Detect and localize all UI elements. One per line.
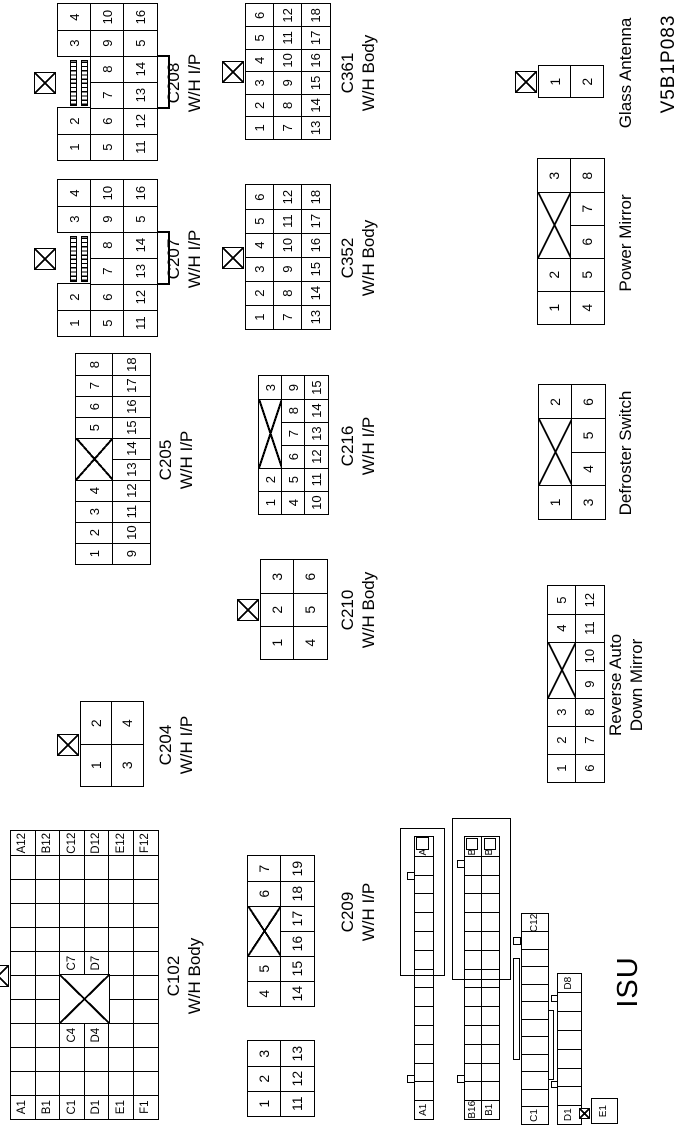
pin-cell-12: 12 (575, 585, 605, 615)
pin-cell-9: 9 (90, 205, 125, 233)
pin-cell-14: 14 (112, 437, 151, 460)
pin-cell (557, 1067, 582, 1088)
pin-cell-2: 2 (57, 283, 92, 311)
connector-label-line: C205 (156, 431, 177, 490)
pin-cell-8: 8 (273, 280, 303, 306)
pin-cell-F12: F12 (133, 830, 159, 856)
pin-cell-15: 15 (301, 256, 331, 282)
pin-cell-8: 8 (575, 697, 605, 727)
pin-cell (133, 926, 159, 952)
pin-cell-C7: C7 (59, 950, 85, 976)
pin-cell (133, 854, 159, 880)
pin-cell-6: 6 (281, 444, 306, 469)
pin-cell (10, 998, 36, 1024)
pin-cell-4: 4 (111, 701, 144, 745)
housing-outline (400, 828, 445, 976)
pin-cell (521, 1088, 549, 1107)
pin-cell-9: 9 (273, 256, 303, 282)
pin-cell-10: 10 (90, 179, 125, 207)
pin-cell (133, 1070, 159, 1096)
pin-cell-2: 2 (260, 592, 295, 627)
pin-cell-6: 6 (571, 384, 606, 419)
pin-cell (35, 926, 61, 952)
connector-label-line: Defroster Switch (616, 391, 637, 516)
pin-cell-11: 11 (575, 613, 605, 643)
pin-cell-5: 5 (75, 416, 114, 439)
pin-cell (464, 1043, 483, 1064)
connector-label-C207: C207W/H I/P (164, 230, 205, 289)
pin-cell (133, 950, 159, 976)
pin-cell (521, 1001, 549, 1020)
figure-code: V5B1P083 (658, 15, 680, 114)
housing-outline (452, 818, 511, 980)
pin-cell-5: 5 (293, 592, 328, 627)
pin-cell-13: 13 (301, 304, 331, 330)
lock-rail-icon (81, 60, 88, 106)
pin-cell (59, 1070, 85, 1096)
pin-cell (10, 1022, 36, 1048)
pin-cell (521, 1018, 549, 1037)
pin-cell-9: 9 (281, 375, 306, 400)
pin-cell-3: 3 (245, 71, 275, 95)
pin-cell-10: 10 (273, 232, 303, 258)
pin-cell-1: 1 (538, 485, 573, 520)
pin-cell-4: 4 (57, 179, 92, 207)
pin-cell-2: 2 (75, 521, 114, 544)
pin-cell-14: 14 (123, 55, 158, 83)
pin-cell-14: 14 (280, 980, 315, 1007)
pin-cell (59, 902, 85, 928)
pin-cell-8: 8 (273, 93, 303, 117)
connector-label-C102: C102W/H Body (164, 938, 205, 1015)
connector-label-line: C361 (338, 35, 359, 112)
pin-cell (133, 878, 159, 904)
pin-cell (521, 966, 549, 985)
connector-label-C204: C204W/H I/P (156, 716, 197, 775)
clip-mark-icon (579, 1108, 590, 1119)
pin-cell-7: 7 (575, 725, 605, 755)
pin-cell-5: 5 (90, 133, 125, 161)
pin-cell-5: 5 (245, 26, 275, 50)
pin-cell-5: 5 (123, 205, 158, 233)
pin-cell-1: 1 (537, 290, 572, 325)
connector-label-C216: C216W/H I/P (338, 417, 379, 476)
pin-cell (464, 987, 483, 1008)
pin-cell (133, 902, 159, 928)
pin-cell-16: 16 (123, 3, 158, 31)
pin-cell-1: 1 (80, 743, 113, 787)
pin-cell-1: 1 (245, 116, 275, 140)
pin-cell (557, 992, 582, 1013)
connector-label-line: W/H Body (359, 220, 380, 297)
pin-cell-18: 18 (112, 353, 151, 376)
pin-cell (414, 1024, 434, 1045)
pin-cell (35, 1022, 61, 1048)
pin-cell-2: 2 (538, 384, 573, 419)
clip-mark-icon (515, 72, 537, 94)
pin-cell (59, 878, 85, 904)
pin-cell-D1: D1 (557, 1105, 582, 1126)
pin-cell-8: 8 (90, 55, 125, 83)
pin-cell-B12: B12 (35, 830, 61, 856)
x-cell (75, 437, 114, 481)
connector-label-ReverseAutoDownMirror: Reverse AutoDown Mirror (606, 634, 647, 736)
pin-cell-13: 13 (301, 116, 331, 140)
clip-mark-icon (222, 247, 244, 269)
pin-cell (414, 1006, 434, 1027)
pin-cell-11: 11 (123, 309, 158, 337)
pin-cell-5: 5 (281, 467, 306, 492)
connector-label-line: W/H I/P (185, 230, 206, 289)
connector-label-line: C102 (164, 938, 185, 1015)
clip-mark-icon (0, 965, 9, 987)
connector-label-C210: C210W/H Body (338, 572, 379, 649)
pin-cell-D12: D12 (84, 830, 110, 856)
pin-cell-6: 6 (575, 753, 605, 783)
connector-label-line: W/H Body (185, 938, 206, 1015)
connector-label-line: C209 (338, 883, 359, 942)
pin-cell (35, 854, 61, 880)
x-cell (59, 974, 110, 1024)
housing-pad (466, 838, 478, 850)
pin-cell-7: 7 (281, 421, 306, 446)
pin-cell-2: 2 (57, 107, 92, 135)
pin-cell-17: 17 (112, 374, 151, 397)
pin-cell-6: 6 (245, 3, 275, 27)
pin-cell-5: 5 (245, 208, 275, 234)
pin-cell-10: 10 (575, 641, 605, 671)
pin-cell (481, 987, 500, 1008)
pin-cell-12: 12 (273, 184, 303, 210)
pin-cell-7: 7 (90, 81, 125, 109)
pin-cell-6: 6 (570, 224, 605, 259)
pin-cell-13: 13 (304, 421, 329, 446)
pin-cell (10, 974, 36, 1000)
pin-cell-12: 12 (123, 107, 158, 135)
pin-cell (464, 1081, 483, 1102)
clip-mark-icon (34, 72, 56, 94)
diagram-page: A1A12B1B12C1C4C7C12D1D4D7D12E1E12F1F12C1… (0, 0, 700, 1127)
pin-cell-5: 5 (247, 955, 282, 982)
pin-cell-4: 4 (245, 232, 275, 258)
pin-cell (84, 926, 110, 952)
pin-cell (108, 902, 134, 928)
pin-cell-12: 12 (123, 283, 158, 311)
pin-cell-F1: F1 (133, 1094, 159, 1120)
pin-cell-12: 12 (273, 3, 303, 27)
pin-cell (84, 1046, 110, 1072)
pin-cell-E1: E1 (591, 1098, 618, 1124)
pin-cell-4: 4 (281, 490, 306, 515)
pin-cell (84, 902, 110, 928)
pin-cell-4: 4 (245, 48, 275, 72)
pin-cell-6: 6 (293, 559, 328, 594)
pin-cell-1: 1 (75, 542, 114, 565)
pin-cell-16: 16 (301, 48, 331, 72)
pin-cell (414, 1081, 434, 1102)
pin-cell-1: 1 (260, 625, 295, 660)
pin-cell (10, 950, 36, 976)
pin-cell (10, 1046, 36, 1072)
pin-cell-11: 11 (280, 1090, 315, 1117)
pin-cell (59, 926, 85, 952)
pin-cell-9: 9 (90, 29, 125, 57)
pin-cell-3: 3 (571, 485, 606, 520)
connector-label-line: W/H I/P (177, 716, 198, 775)
pin-cell (521, 931, 549, 950)
pin-cell-13: 13 (280, 1040, 315, 1067)
pin-cell-3: 3 (547, 697, 577, 727)
pin-cell-D7: D7 (84, 950, 110, 976)
pin-cell-16: 16 (280, 930, 315, 957)
pin-cell-B1: B1 (35, 1094, 61, 1120)
connector-label-line: C216 (338, 417, 359, 476)
connector-label-line: Down Mirror (627, 634, 648, 736)
pin-cell-15: 15 (301, 71, 331, 95)
pin-cell-4: 4 (571, 451, 606, 486)
pin-cell-6: 6 (247, 880, 282, 907)
pin-cell (464, 1024, 483, 1045)
connector-label-line: C208 (164, 54, 185, 113)
pin-cell-3: 3 (258, 375, 283, 400)
pin-cell (35, 974, 61, 1000)
housing-pad (457, 1075, 465, 1083)
connector-label-line: W/H I/P (177, 431, 198, 490)
pin-cell-16: 16 (123, 179, 158, 207)
pin-cell-14: 14 (304, 398, 329, 423)
pin-cell (108, 950, 134, 976)
pin-cell-6: 6 (75, 395, 114, 418)
pin-cell (108, 854, 134, 880)
pin-cell-16: 16 (112, 395, 151, 418)
pin-cell (108, 926, 134, 952)
pin-cell (133, 1046, 159, 1072)
pin-cell (35, 950, 61, 976)
pin-cell (521, 1071, 549, 1090)
housing-pad (551, 995, 558, 1002)
pin-cell-8: 8 (281, 398, 306, 423)
pin-cell (35, 1070, 61, 1096)
housing-outline (548, 1010, 554, 1080)
connector-label-line: Power Mirror (616, 194, 637, 291)
pin-cell-11: 11 (273, 208, 303, 234)
clip-mark-icon (237, 600, 259, 622)
connector-label-C352: C352W/H Body (338, 220, 379, 297)
pin-cell (557, 1086, 582, 1107)
connector-label-line: W/H Body (359, 35, 380, 112)
pin-cell-18: 18 (301, 3, 331, 27)
pin-cell (108, 1046, 134, 1072)
x-cell (547, 641, 577, 699)
connector-label-C205: C205W/H I/P (156, 431, 197, 490)
diagram-board: A1A12B1B12C1C4C7C12D1D4D7D12E1E12F1F12C1… (0, 0, 700, 1127)
clip-mark-icon (222, 62, 244, 84)
pin-cell (10, 854, 36, 880)
connector-label-line: C352 (338, 220, 359, 297)
housing-pad (484, 838, 496, 850)
pin-cell-11: 11 (123, 133, 158, 161)
pin-cell (10, 1070, 36, 1096)
pin-cell-16: 16 (301, 232, 331, 258)
housing-pad (407, 872, 415, 880)
pin-cell-2: 2 (247, 1065, 282, 1092)
pin-cell (481, 1006, 500, 1027)
pin-cell-18: 18 (301, 184, 331, 210)
pin-cell-D8: D8 (557, 973, 582, 994)
pin-cell-5: 5 (547, 585, 577, 615)
connector-label-line: Glass Antenna (616, 18, 637, 129)
pin-cell (84, 1070, 110, 1096)
pin-cell (35, 1046, 61, 1072)
pin-cell-3: 3 (57, 29, 92, 57)
connector-label-line: C210 (338, 572, 359, 649)
pin-cell-17: 17 (301, 26, 331, 50)
pin-cell (414, 987, 434, 1008)
pin-cell-8: 8 (570, 158, 605, 193)
pin-cell (10, 926, 36, 952)
pin-cell-17: 17 (280, 905, 315, 932)
isu-label: ISU (612, 956, 645, 1007)
pin-cell-2: 2 (547, 725, 577, 755)
pin-cell-5: 5 (571, 418, 606, 453)
pin-cell-11: 11 (273, 26, 303, 50)
pin-cell-6: 6 (90, 283, 125, 311)
pin-cell-12: 12 (304, 444, 329, 469)
pin-cell (108, 878, 134, 904)
pin-cell (10, 878, 36, 904)
pin-cell-A12: A12 (10, 830, 36, 856)
pin-cell (35, 878, 61, 904)
pin-cell-C1: C1 (521, 1106, 549, 1125)
housing-outline (513, 958, 520, 1060)
pin-cell-14: 14 (301, 280, 331, 306)
pin-cell (414, 1043, 434, 1064)
pin-cell-8: 8 (75, 353, 114, 376)
pin-cell (557, 1029, 582, 1050)
pin-cell (481, 1024, 500, 1045)
connector-label-line: W/H I/P (359, 883, 380, 942)
pin-cell (35, 902, 61, 928)
pin-cell-7: 7 (247, 855, 282, 882)
housing-pad (407, 1075, 415, 1083)
pin-cell-1: 1 (538, 65, 572, 98)
pin-cell (10, 902, 36, 928)
pin-cell-E12: E12 (108, 830, 134, 856)
pin-cell-11: 11 (304, 467, 329, 492)
connector-label-line: Reverse Auto (606, 634, 627, 736)
pin-cell-3: 3 (245, 256, 275, 282)
pin-cell (108, 998, 134, 1024)
housing-pad (416, 837, 429, 850)
connector-label-C208: C208W/H I/P (164, 54, 205, 113)
pin-cell-C1: C1 (59, 1094, 85, 1120)
pin-cell-8: 8 (90, 231, 125, 259)
pin-cell-2: 2 (80, 701, 113, 745)
pin-cell-3: 3 (57, 205, 92, 233)
pin-cell (481, 1043, 500, 1064)
pin-cell-12: 12 (112, 479, 151, 502)
housing-pad (457, 860, 465, 868)
pin-cell-9: 9 (273, 71, 303, 95)
pin-cell-4: 4 (57, 3, 92, 31)
pin-cell-3: 3 (111, 743, 144, 787)
pin-cell (521, 983, 549, 1002)
pin-cell-C4: C4 (59, 1022, 85, 1048)
connector-label-DefrosterSwitch: Defroster Switch (616, 391, 637, 516)
lock-rail-icon (70, 60, 77, 106)
pin-cell-14: 14 (301, 93, 331, 117)
housing-pad (551, 1081, 558, 1088)
pin-cell (521, 948, 549, 967)
pin-cell-7: 7 (75, 374, 114, 397)
pin-cell-6: 6 (90, 107, 125, 135)
pin-cell (108, 1022, 134, 1048)
pin-cell-5: 5 (123, 29, 158, 57)
pin-cell (84, 878, 110, 904)
pin-cell-9: 9 (112, 542, 151, 565)
pin-cell (108, 1070, 134, 1096)
pin-cell-13: 13 (123, 257, 158, 285)
pin-cell (35, 998, 61, 1024)
pin-cell (133, 998, 159, 1024)
connector-label-line: W/H I/P (359, 417, 380, 476)
pin-cell-15: 15 (112, 416, 151, 439)
pin-cell-13: 13 (112, 458, 151, 481)
pin-cell-1: 1 (57, 133, 92, 161)
pin-cell-1: 1 (247, 1090, 282, 1117)
pin-cell-C12: C12 (521, 913, 549, 932)
pin-cell-14: 14 (123, 231, 158, 259)
x-cell (258, 398, 283, 469)
clip-mark-icon (57, 734, 79, 756)
pin-cell (84, 854, 110, 880)
pin-cell (521, 1036, 549, 1055)
pin-cell (59, 854, 85, 880)
pin-cell-2: 2 (245, 93, 275, 117)
x-cell (537, 191, 572, 259)
pin-cell (557, 1048, 582, 1069)
lock-rail-icon (81, 236, 88, 282)
pin-cell (557, 1011, 582, 1032)
pin-cell (414, 1062, 434, 1083)
pin-cell-C12: C12 (59, 830, 85, 856)
pin-cell-6: 6 (245, 184, 275, 210)
connector-label-C361: C361W/H Body (338, 35, 379, 112)
pin-cell-B1: B1 (481, 1100, 500, 1121)
pin-cell-7: 7 (90, 257, 125, 285)
pin-cell-19: 19 (280, 855, 315, 882)
pin-cell-5: 5 (570, 257, 605, 292)
pin-cell (464, 1006, 483, 1027)
pin-cell-10: 10 (304, 490, 329, 515)
x-cell (538, 418, 573, 487)
pin-cell (481, 1062, 500, 1083)
pin-cell-10: 10 (273, 48, 303, 72)
lock-rail-icon (70, 236, 77, 282)
pin-cell-12: 12 (280, 1065, 315, 1092)
pin-cell-15: 15 (304, 375, 329, 400)
pin-cell (59, 1046, 85, 1072)
housing-pad (513, 937, 521, 945)
pin-cell-7: 7 (273, 116, 303, 140)
pin-cell (133, 1022, 159, 1048)
pin-cell-10: 10 (112, 521, 151, 544)
pin-cell (481, 1081, 500, 1102)
pin-cell-1: 1 (258, 490, 283, 515)
pin-cell-D4: D4 (84, 1022, 110, 1048)
pin-cell-5: 5 (90, 309, 125, 337)
pin-cell-7: 7 (273, 304, 303, 330)
